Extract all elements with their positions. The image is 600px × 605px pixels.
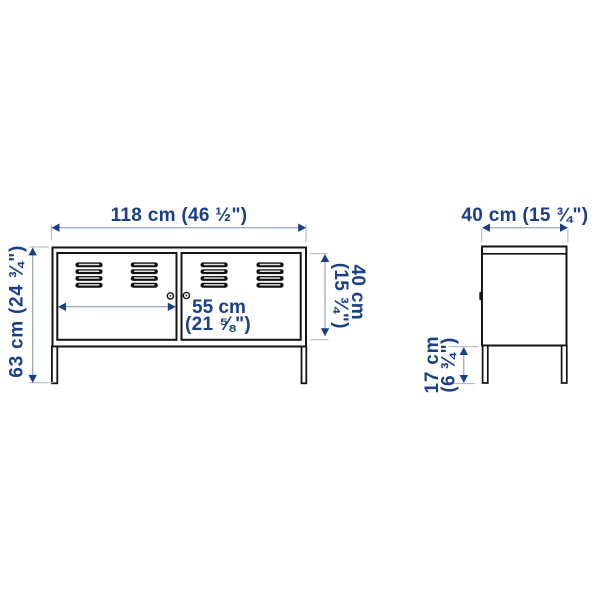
svg-text:40 cm (15 ¾"): 40 cm (15 ¾") xyxy=(461,205,588,226)
svg-text:118 cm (46 ½"): 118 cm (46 ½") xyxy=(111,205,248,226)
svg-text:(21 ⅝"): (21 ⅝") xyxy=(185,314,251,335)
svg-text:63 cm (24 ¾"): 63 cm (24 ¾") xyxy=(7,245,28,378)
svg-text:(15 ¾"): (15 ¾") xyxy=(330,263,351,329)
svg-text:(6 ¾"): (6 ¾") xyxy=(439,337,460,392)
